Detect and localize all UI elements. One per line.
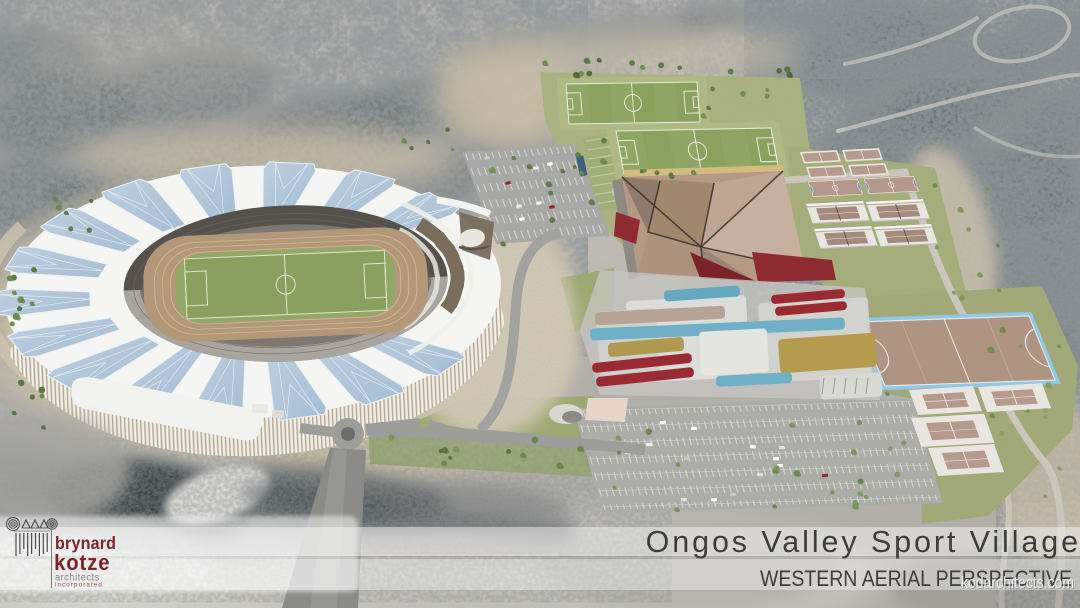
svg-text:kodarchitects.com: kodarchitects.com [961,574,1074,592]
svg-text:brynard: brynard [55,533,116,553]
svg-text:Ongos Valley Sport Village: Ongos Valley Sport Village [646,525,1080,559]
svg-text:incorporated: incorporated [55,581,103,588]
